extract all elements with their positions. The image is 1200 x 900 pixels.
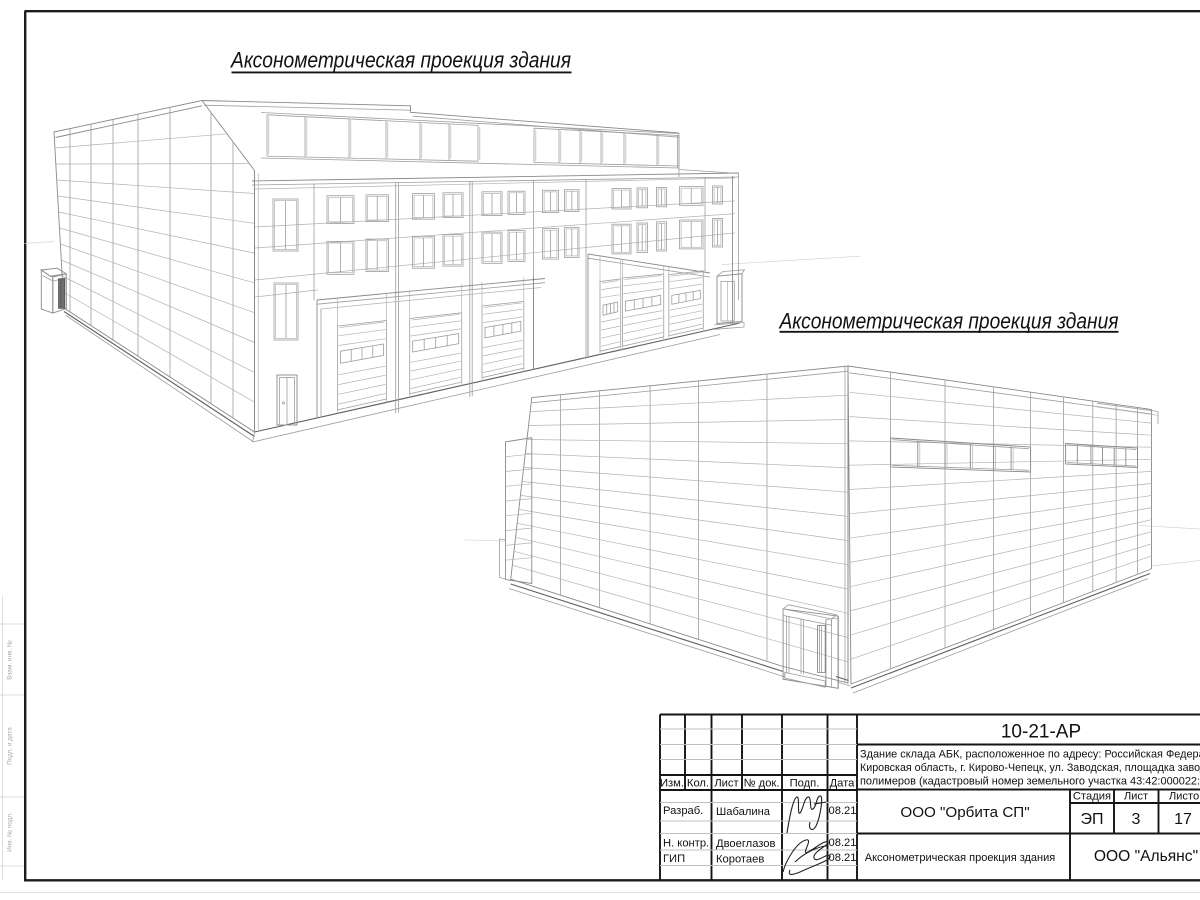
svg-text:08.21: 08.21 [829, 852, 857, 864]
svg-text:10-21-АР: 10-21-АР [1001, 722, 1081, 743]
svg-text:полимеров (кадастровый номер з: полимеров (кадастровый номер земельного … [860, 776, 1200, 788]
svg-text:08.21: 08.21 [829, 837, 857, 849]
svg-text:Двоеглазов: Двоеглазов [716, 838, 776, 850]
svg-text:№ док.: № док. [744, 778, 780, 790]
svg-text:Лист: Лист [1124, 791, 1148, 803]
svg-text:3: 3 [1132, 811, 1141, 828]
svg-text:Кировская область, г. Кирово-Ч: Кировская область, г. Кирово-Чепецк, ул.… [860, 762, 1200, 774]
svg-text:Инв. № подл.: Инв. № подл. [7, 812, 14, 852]
svg-text:Подп. и дата: Подп. и дата [7, 727, 14, 765]
svg-text:Стадия: Стадия [1073, 791, 1111, 803]
svg-text:Кол.: Кол. [687, 778, 709, 790]
svg-text:17: 17 [1174, 811, 1192, 828]
svg-text:ЭП: ЭП [1081, 811, 1104, 828]
svg-text:Шабалина: Шабалина [716, 806, 771, 818]
svg-text:Разраб.: Разраб. [663, 805, 703, 817]
svg-text:Аксонометрическая проекция зда: Аксонометрическая проекция здания [229, 48, 571, 73]
svg-text:Коротаев: Коротаев [716, 854, 764, 866]
svg-text:Листов: Листов [1169, 791, 1200, 803]
svg-text:08.21: 08.21 [829, 805, 857, 817]
svg-text:Подп.: Подп. [790, 778, 820, 790]
svg-text:Аксонометрическая проекция зда: Аксонометрическая проекция здания [778, 308, 1119, 333]
svg-text:Взам. инв. №: Взам. инв. № [7, 640, 14, 680]
svg-text:Здание склада АБК, расположенн: Здание склада АБК, расположенное по адре… [860, 749, 1200, 761]
svg-text:Аксонометрическая проекция зда: Аксонометрическая проекция здания [865, 852, 1055, 864]
svg-text:ГИП: ГИП [663, 853, 685, 865]
svg-text:Дата: Дата [830, 778, 856, 790]
svg-text:Лист: Лист [714, 778, 738, 790]
svg-text:Н. контр.: Н. контр. [663, 838, 709, 850]
svg-text:ООО "Орбита СП": ООО "Орбита СП" [900, 804, 1029, 821]
svg-text:ООО "Альянс": ООО "Альянс" [1094, 848, 1198, 865]
svg-text:Изм.: Изм. [660, 778, 684, 790]
